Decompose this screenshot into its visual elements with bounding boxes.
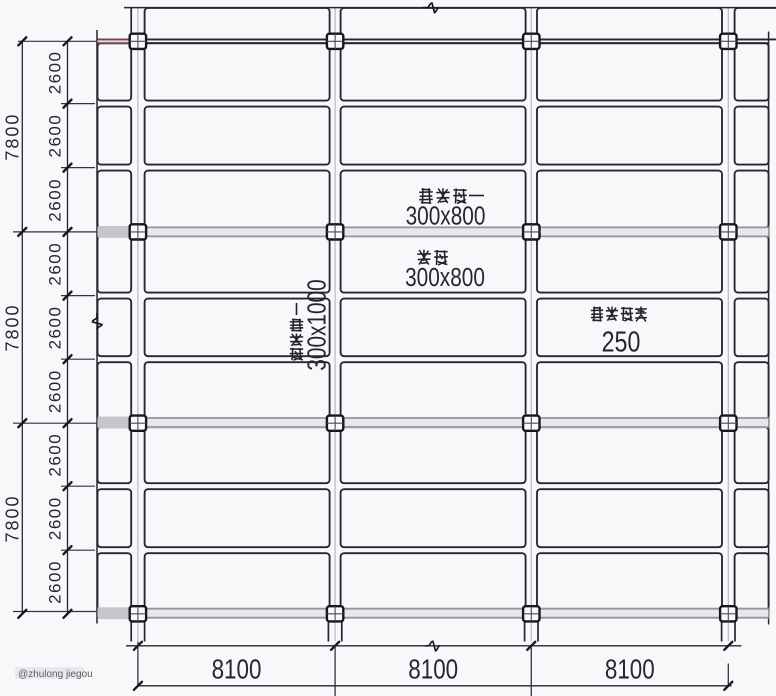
svg-text:2600: 2600 [46, 369, 65, 413]
svg-text:7800: 7800 [3, 113, 23, 161]
svg-text:2600: 2600 [46, 560, 65, 604]
svg-text:300x800: 300x800 [405, 263, 485, 292]
svg-text:2600: 2600 [46, 178, 65, 222]
svg-text:2600: 2600 [46, 50, 65, 94]
svg-text:2600: 2600 [46, 496, 65, 540]
svg-text:8100: 8100 [605, 654, 655, 685]
svg-text:8100: 8100 [408, 654, 458, 685]
svg-text:7800: 7800 [3, 494, 23, 542]
svg-text:2600: 2600 [46, 242, 65, 286]
svg-text:250: 250 [602, 325, 641, 358]
svg-text:7800: 7800 [3, 303, 23, 351]
svg-text:@zhulong jiegou: @zhulong jiegou [18, 669, 93, 680]
svg-text:2600: 2600 [46, 306, 65, 350]
svg-text:300x1000: 300x1000 [302, 279, 331, 370]
svg-text:8100: 8100 [212, 654, 262, 685]
svg-text:300x800: 300x800 [406, 201, 486, 230]
svg-text:2600: 2600 [46, 114, 65, 158]
svg-text:2600: 2600 [46, 433, 65, 477]
